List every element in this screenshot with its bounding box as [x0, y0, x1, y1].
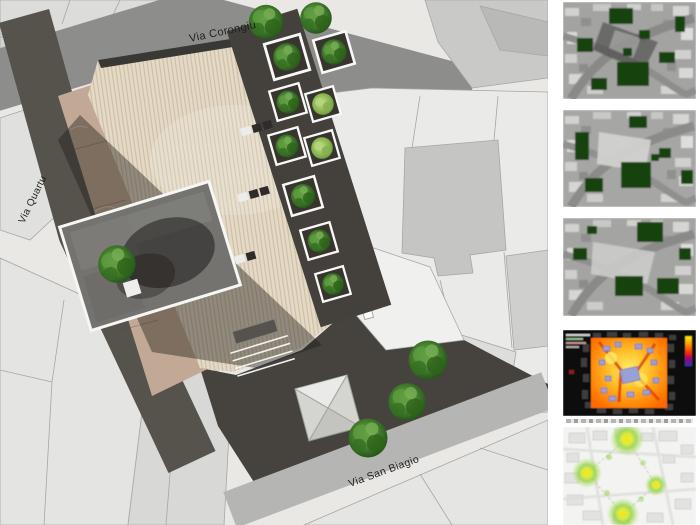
thumbnail-caption-strip: [566, 419, 693, 423]
site-plan-drawing: Via Corongiu Via Quartu Via San Biagio: [0, 0, 548, 525]
thumbnail-solar-radiation[interactable]: [563, 330, 696, 416]
thumbnail-shadow-study-2[interactable]: [563, 110, 696, 207]
thumbnail-light-visibility[interactable]: [563, 427, 696, 525]
thumbnail-shadow-study-1[interactable]: [563, 2, 696, 99]
presentation-board: Via Corongiu Via Quartu Via San Biagio: [0, 0, 700, 525]
thumbnail-shadow-study-3[interactable]: [563, 218, 696, 316]
thermal-colorbar: [685, 336, 692, 366]
site-plan: Via Corongiu Via Quartu Via San Biagio: [0, 0, 548, 525]
